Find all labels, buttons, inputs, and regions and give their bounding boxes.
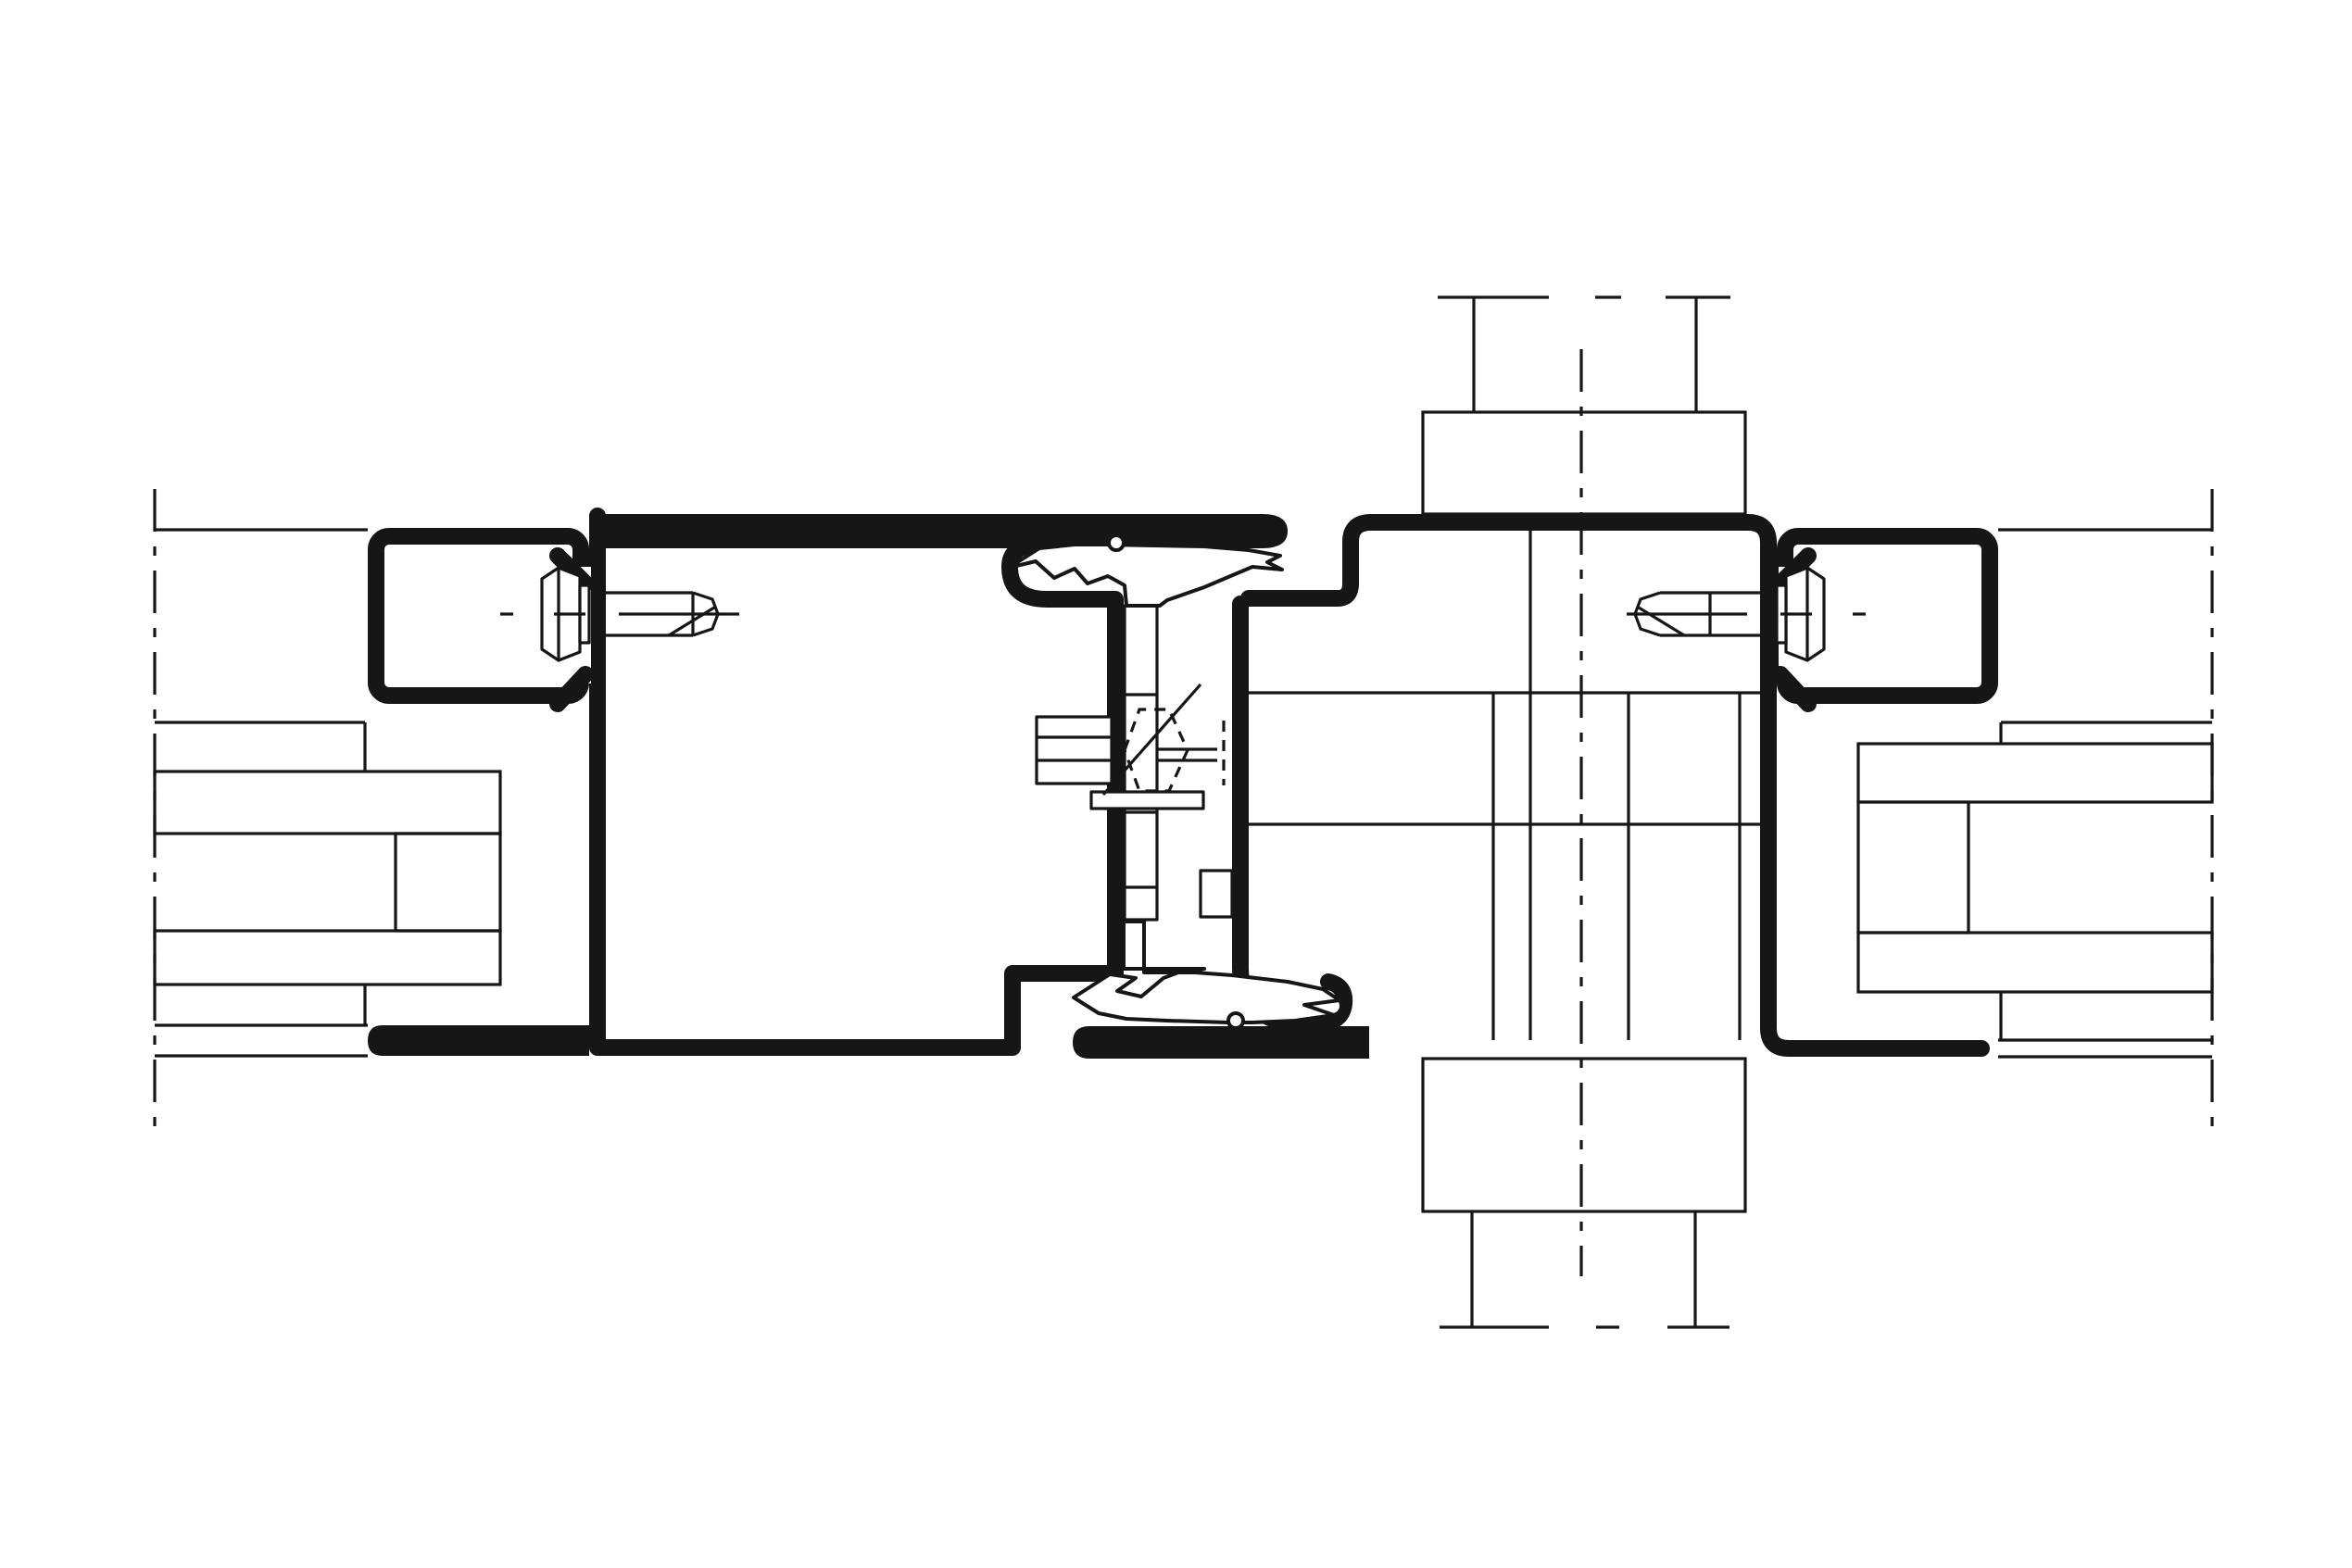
gasket-nub bbox=[1228, 1013, 1243, 1028]
drawing-canvas bbox=[0, 0, 2352, 1568]
gasket-nub bbox=[1109, 535, 1124, 550]
section-drawing bbox=[0, 0, 2352, 1568]
clamp-plate bbox=[1091, 792, 1203, 809]
bottom-cover-profile bbox=[1073, 1026, 1369, 1059]
paper-background bbox=[0, 0, 2352, 1568]
sleeve-foot bbox=[1201, 871, 1232, 917]
vent-bottom-flange bbox=[368, 1025, 589, 1056]
vent-top-flange bbox=[589, 514, 1288, 548]
bolt-washer-plate bbox=[1037, 717, 1112, 784]
